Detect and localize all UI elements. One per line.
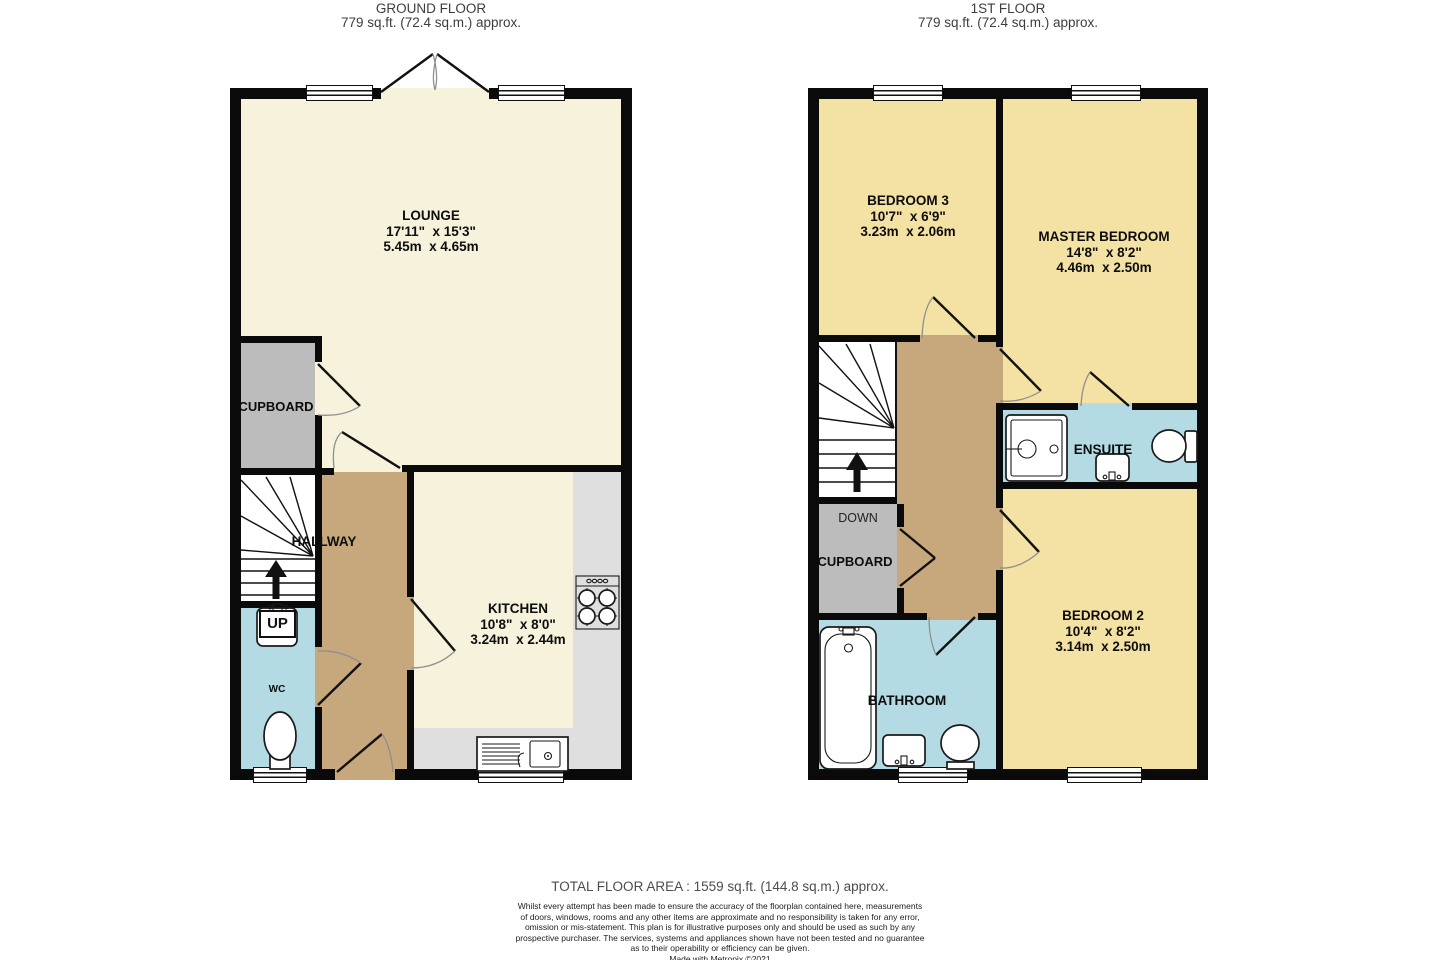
disclaimer: Whilst every attempt has been made to en…	[495, 901, 945, 960]
wall	[230, 601, 322, 608]
room-name: BEDROOM 3	[808, 193, 1008, 209]
bedroom2-label: BEDROOM 2 10'4" x 8'2" 3.14m x 2.50m	[1003, 608, 1203, 655]
room-dims-imperial: 10'8" x 8'0"	[418, 617, 618, 633]
ground-floor-plan	[230, 88, 632, 780]
disclaimer-line: omission or mis-statement. This plan is …	[495, 922, 945, 933]
window	[898, 767, 968, 783]
room-name: BEDROOM 2	[1003, 608, 1203, 624]
door-opening	[315, 647, 322, 707]
lounge-label: LOUNGE 17'11" x 15'3" 5.45m x 4.65m	[281, 208, 581, 255]
wall	[315, 336, 322, 362]
wall	[230, 336, 322, 343]
wall	[996, 403, 1003, 508]
disclaimer-line: Whilst every attempt has been made to en…	[495, 901, 945, 912]
master-bedroom-label: MASTER BEDROOM 14'8" x 8'2" 4.46m x 2.50…	[1004, 229, 1204, 276]
door-opening	[897, 527, 904, 588]
wall	[808, 497, 897, 504]
wall	[621, 88, 632, 780]
hallway-label: HALLWAY	[264, 534, 384, 550]
wall	[407, 670, 414, 769]
window	[873, 85, 943, 101]
room-dims-metric: 3.23m x 2.06m	[808, 224, 1008, 240]
room-dims-metric: 3.24m x 2.44m	[418, 632, 618, 648]
stairs-area-1f	[819, 342, 897, 497]
door-opening	[1078, 403, 1132, 410]
first-floor-title: 1ST FLOOR	[808, 2, 1208, 16]
room-dims-metric: 3.14m x 2.50m	[1003, 639, 1203, 655]
wall	[315, 608, 322, 647]
credit-line: Made with Metropix ©2021	[495, 954, 945, 960]
floorplan-page: GROUND FLOOR 779 sq.ft. (72.4 sq.m.) app…	[0, 0, 1440, 960]
wall	[407, 472, 414, 597]
wall	[897, 504, 904, 527]
wall	[808, 769, 1208, 780]
room-name: KITCHEN	[418, 601, 618, 617]
disclaimer-line: prospective purchaser. The services, sys…	[495, 933, 945, 944]
room-dims-metric: 5.45m x 4.65m	[281, 239, 581, 255]
wall	[978, 335, 1003, 342]
french-doors	[381, 54, 489, 92]
wall	[1197, 88, 1208, 780]
first-floor-area: 779 sq.ft. (72.4 sq.m.) approx.	[808, 16, 1208, 30]
wall	[897, 588, 904, 613]
wall	[996, 482, 1197, 489]
room-hallway	[322, 472, 407, 769]
wall	[230, 88, 241, 780]
wall	[996, 403, 1078, 410]
wall	[1132, 403, 1197, 410]
kitchen-label: KITCHEN 10'8" x 8'0" 3.24m x 2.44m	[418, 601, 618, 648]
room-landing	[897, 342, 996, 613]
window	[478, 767, 564, 783]
first-floor-plan	[808, 88, 1208, 780]
room-kitchen	[414, 472, 573, 728]
ground-floor-title: GROUND FLOOR	[231, 2, 631, 16]
window	[1071, 85, 1141, 101]
wall	[489, 88, 497, 99]
wall	[808, 88, 819, 780]
cupboard-1f-label: CUPBOARD	[812, 554, 898, 570]
wc-label: WC	[247, 684, 307, 695]
total-floor-area: TOTAL FLOOR AREA : 1559 sq.ft. (144.8 sq…	[420, 879, 1020, 894]
wall	[996, 570, 1003, 769]
cupboard-gf-label: CUPBOARD	[230, 399, 322, 415]
disclaimer-line: of doors, windows, rooms and any other i…	[495, 912, 945, 923]
wall	[315, 415, 322, 470]
bedroom3-label: BEDROOM 3 10'7" x 6'9" 3.23m x 2.06m	[808, 193, 1008, 240]
wall	[808, 88, 1208, 99]
french-door-opening	[373, 88, 497, 99]
door-opening	[407, 597, 414, 670]
ground-floor-area: 779 sq.ft. (72.4 sq.m.) approx.	[231, 16, 631, 30]
room-dims-imperial: 10'4" x 8'2"	[1003, 624, 1203, 640]
room-dims-imperial: 17'11" x 15'3"	[281, 224, 581, 240]
window	[498, 85, 565, 101]
room-name: LOUNGE	[281, 208, 581, 224]
door-opening	[996, 508, 1003, 570]
wall	[373, 88, 381, 99]
front-door-opening	[335, 769, 395, 780]
window	[253, 767, 307, 783]
room-dims-imperial: 14'8" x 8'2"	[1004, 245, 1204, 261]
wall	[315, 707, 322, 769]
stairs-down-label: DOWN	[818, 511, 898, 525]
window	[1067, 767, 1142, 783]
window	[306, 85, 373, 101]
wall	[808, 613, 927, 620]
bathroom-label: BATHROOM	[827, 693, 987, 709]
room-name: MASTER BEDROOM	[1004, 229, 1204, 245]
door-opening	[920, 335, 978, 342]
kitchen-counter-bottom	[414, 728, 621, 769]
wall	[402, 465, 621, 472]
door-opening	[996, 347, 1003, 403]
ensuite-label: ENSUITE	[1043, 442, 1163, 458]
room-dims-imperial: 10'7" x 6'9"	[808, 209, 1008, 225]
wall	[978, 613, 1003, 620]
wall	[808, 335, 920, 342]
door-opening	[927, 613, 978, 620]
stairs-up-label: UP	[259, 610, 296, 638]
room-dims-metric: 4.46m x 2.50m	[1004, 260, 1204, 276]
disclaimer-line: as to their operability or efficiency ca…	[495, 943, 945, 954]
